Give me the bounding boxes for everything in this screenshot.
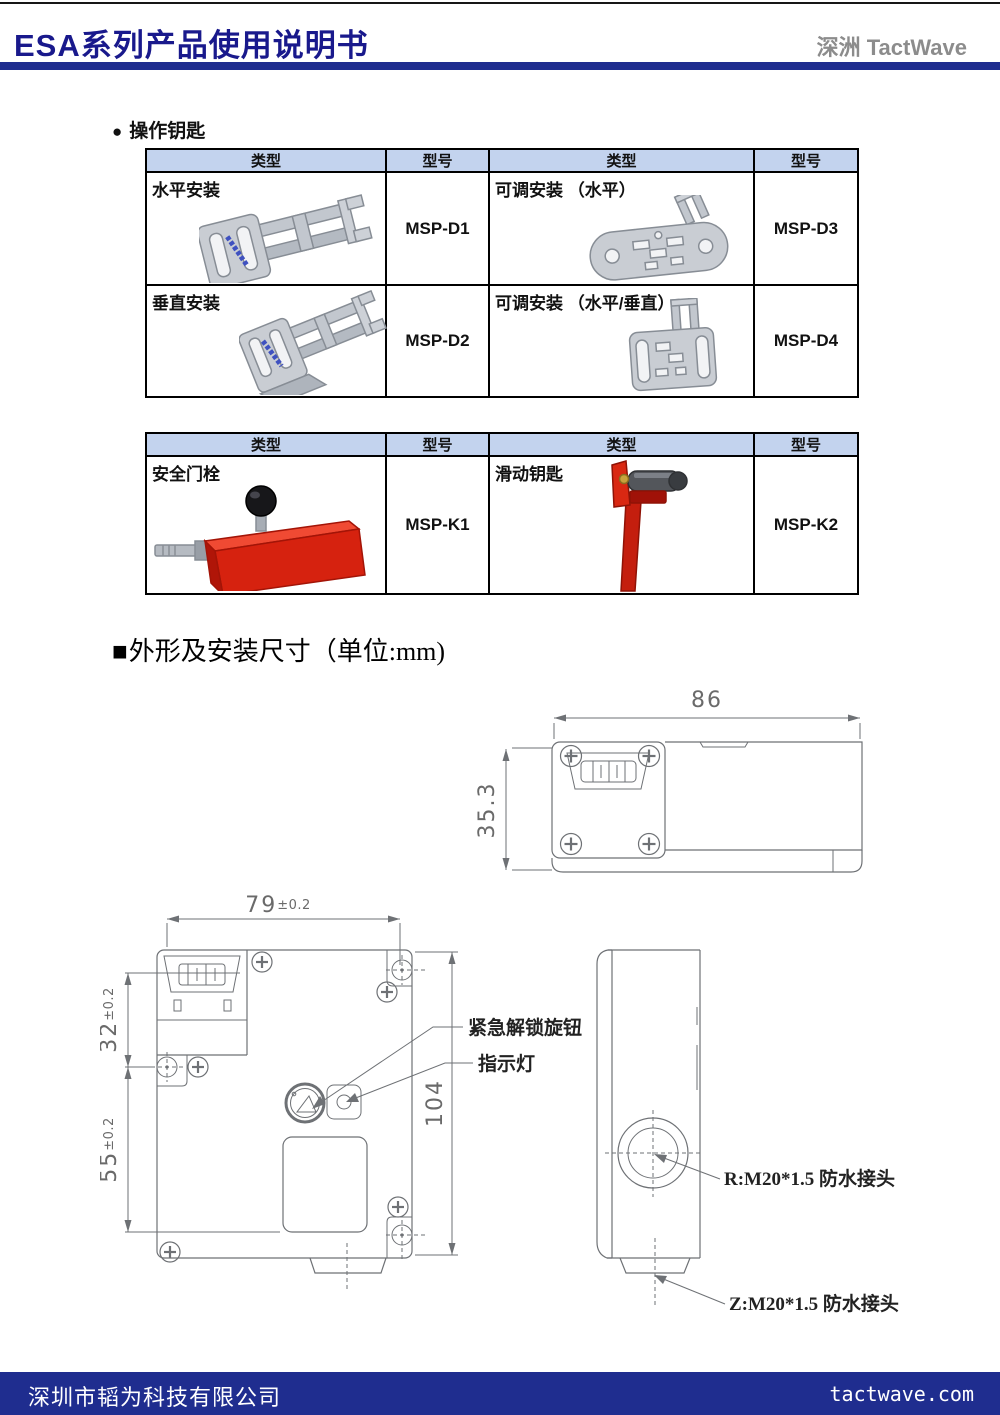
type-label: 水平安装 xyxy=(152,176,220,201)
model-number: MSP-D2 xyxy=(386,285,489,397)
table-row: 水平安装 MSP-D1 xyxy=(146,172,858,285)
dim-front-upper: 32±0.2 xyxy=(100,987,122,1053)
label-indicator-light: 指示灯 xyxy=(478,1053,535,1075)
footer-website: tactwave.com xyxy=(830,1382,975,1406)
msp-k1-product-image xyxy=(153,483,378,591)
table-row: 垂直安装 xyxy=(146,285,858,397)
type-label: 滑动钥匙 xyxy=(495,460,563,485)
msp-d3-product-image xyxy=(585,195,735,283)
operation-keys-table-2: 类型 型号 类型 型号 安全门栓 xyxy=(145,432,859,595)
screw-icon xyxy=(639,746,660,767)
top-border-line xyxy=(0,2,1000,4)
msp-d1-product-image xyxy=(199,185,374,283)
dim-front-height: 104 xyxy=(423,1079,448,1127)
header-divider xyxy=(0,62,1000,70)
col-header-type: 类型 xyxy=(489,433,754,456)
manual-page: ESA系列产品使用说明书 深洲 TactWave ●操作钥匙 类型 型号 类型 … xyxy=(0,0,1000,1415)
col-header-model: 型号 xyxy=(386,433,489,456)
type-label: 可调安装 （水平） xyxy=(495,176,636,201)
screw-icon xyxy=(252,952,272,972)
label-emergency-unlock-knob: 紧急解锁旋钮 xyxy=(468,1016,582,1039)
page-title: ESA系列产品使用说明书 xyxy=(14,20,369,65)
section-title-operation-keys: ●操作钥匙 xyxy=(112,116,205,143)
col-header-type: 类型 xyxy=(146,149,386,172)
dim-top-width: 86 xyxy=(691,688,723,713)
model-number: MSP-D3 xyxy=(754,172,858,285)
dimension-drawings: 86 35.3 xyxy=(100,660,1000,1340)
bullet-icon: ● xyxy=(112,122,122,141)
operation-keys-table-1: 类型 型号 类型 型号 水平安装 xyxy=(145,148,859,398)
screw-icon xyxy=(188,1057,208,1077)
type-label: 可调安装 （水平/垂直） xyxy=(495,289,674,314)
dim-front-width: 79±0.2 xyxy=(245,893,311,918)
brand-logo: 深洲 TactWave xyxy=(817,30,967,62)
type-label: 垂直安装 xyxy=(152,289,220,314)
screw-icon xyxy=(377,982,397,1002)
col-header-model: 型号 xyxy=(386,149,489,172)
label-gland-z: Z:M20*1.5 防水接头 xyxy=(729,1292,899,1315)
msp-k2-product-image xyxy=(582,459,692,594)
model-number: MSP-D1 xyxy=(386,172,489,285)
col-header-type: 类型 xyxy=(489,149,754,172)
table-row: 安全门栓 xyxy=(146,456,858,594)
type-label: 安全门栓 xyxy=(152,460,220,485)
side-view-drawing: R:M20*1.5 防水接头 Z:M20*1.5 防水接头 xyxy=(597,950,899,1315)
screw-icon xyxy=(639,834,660,855)
col-header-model: 型号 xyxy=(754,149,858,172)
screw-icon xyxy=(160,1242,180,1262)
footer-bar: 深圳市韬为科技有限公司 tactwave.com xyxy=(0,1372,1000,1415)
screw-icon xyxy=(561,834,582,855)
top-view-drawing: 86 35.3 xyxy=(475,688,862,872)
col-header-model: 型号 xyxy=(754,433,858,456)
dim-top-height: 35.3 xyxy=(475,782,500,839)
model-number: MSP-D4 xyxy=(754,285,858,397)
msp-d2-product-image xyxy=(239,290,389,395)
front-view-drawing: 79±0.2 32±0.2 55±0.2 104 紧急解锁旋钮 xyxy=(100,893,582,1292)
screw-icon xyxy=(561,746,582,767)
footer-company: 深圳市韬为科技有限公司 xyxy=(28,1380,281,1412)
label-gland-r: R:M20*1.5 防水接头 xyxy=(724,1167,895,1190)
col-header-type: 类型 xyxy=(146,433,386,456)
screw-icon xyxy=(388,1197,408,1217)
model-number: MSP-K2 xyxy=(754,456,858,594)
mounting-hole-icon xyxy=(151,1052,183,1082)
section-keys-label: 操作钥匙 xyxy=(129,121,205,142)
model-number: MSP-K1 xyxy=(386,456,489,594)
dim-front-lower: 55±0.2 xyxy=(100,1117,122,1183)
mounting-hole-icon xyxy=(386,955,426,985)
